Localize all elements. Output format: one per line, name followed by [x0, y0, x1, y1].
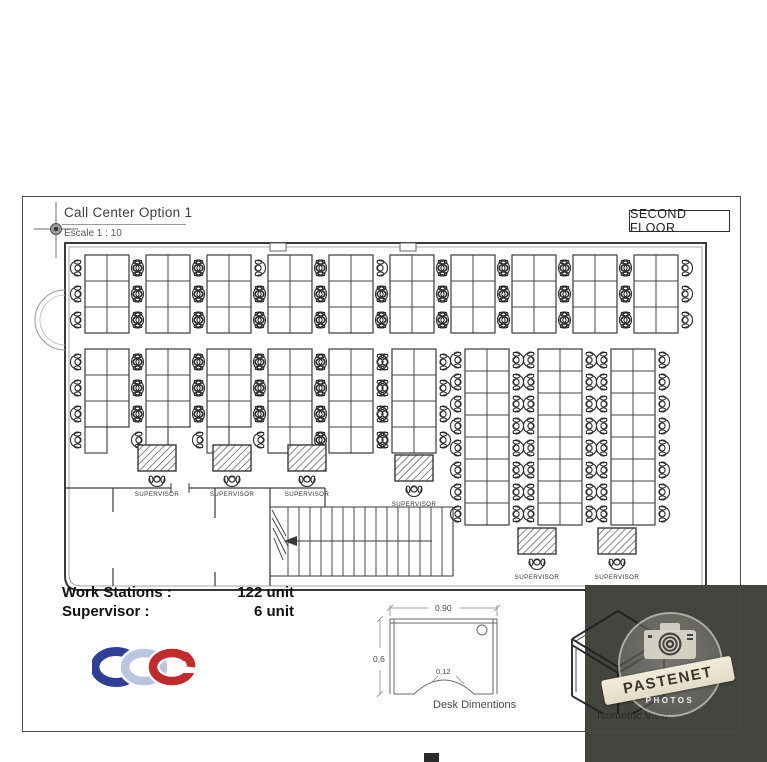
svg-text:SUPERVISOR: SUPERVISOR [210, 491, 255, 498]
svg-text:SUPERVISOR: SUPERVISOR [392, 501, 437, 508]
svg-text:SUPERVISOR: SUPERVISOR [285, 491, 330, 498]
watermark-sub: PHOTOS [616, 696, 724, 705]
page: Call Center Option 1 Escale 1 : 10 SECON… [0, 0, 767, 762]
stat-label: Work Stations : [62, 583, 214, 602]
floor-label: SECOND FLOOR [630, 207, 729, 235]
floor-label-box: SECOND FLOOR [629, 210, 730, 232]
stats-block: Work Stations : 122 unit Supervisor : 6 … [62, 583, 294, 621]
desk-dimensions-drawing: 0.90 0,6 0,12 [372, 596, 524, 698]
drawing-title: Call Center Option 1 [64, 205, 192, 220]
floor-plan: SUPERVISORSUPERVISORSUPERVISORSUPERVISOR… [25, 238, 725, 598]
svg-text:SUPERVISOR: SUPERVISOR [135, 491, 180, 498]
stat-workstations: Work Stations : 122 unit [62, 583, 294, 602]
stat-value: 122 unit [214, 583, 294, 602]
stat-label: Supervisor : [62, 602, 214, 621]
dim-width: 0.90 [435, 603, 452, 613]
dim-inset: 0,12 [436, 667, 451, 676]
cdc-logo [92, 643, 198, 691]
camera-icon [642, 619, 698, 665]
stat-value: 6 unit [214, 602, 294, 621]
stat-supervisors: Supervisor : 6 unit [62, 602, 294, 621]
drawing-scale: Escale 1 : 10 [64, 228, 122, 239]
title-underline [62, 224, 186, 225]
dim-height: 0,6 [373, 654, 385, 664]
svg-text:SUPERVISOR: SUPERVISOR [595, 574, 640, 581]
cropped-mark [424, 753, 439, 762]
watermark-badge: PASTENET PHOTOS [616, 610, 724, 718]
svg-text:SUPERVISOR: SUPERVISOR [515, 574, 560, 581]
desk-dimensions-caption: Desk Dimentions [433, 699, 516, 711]
